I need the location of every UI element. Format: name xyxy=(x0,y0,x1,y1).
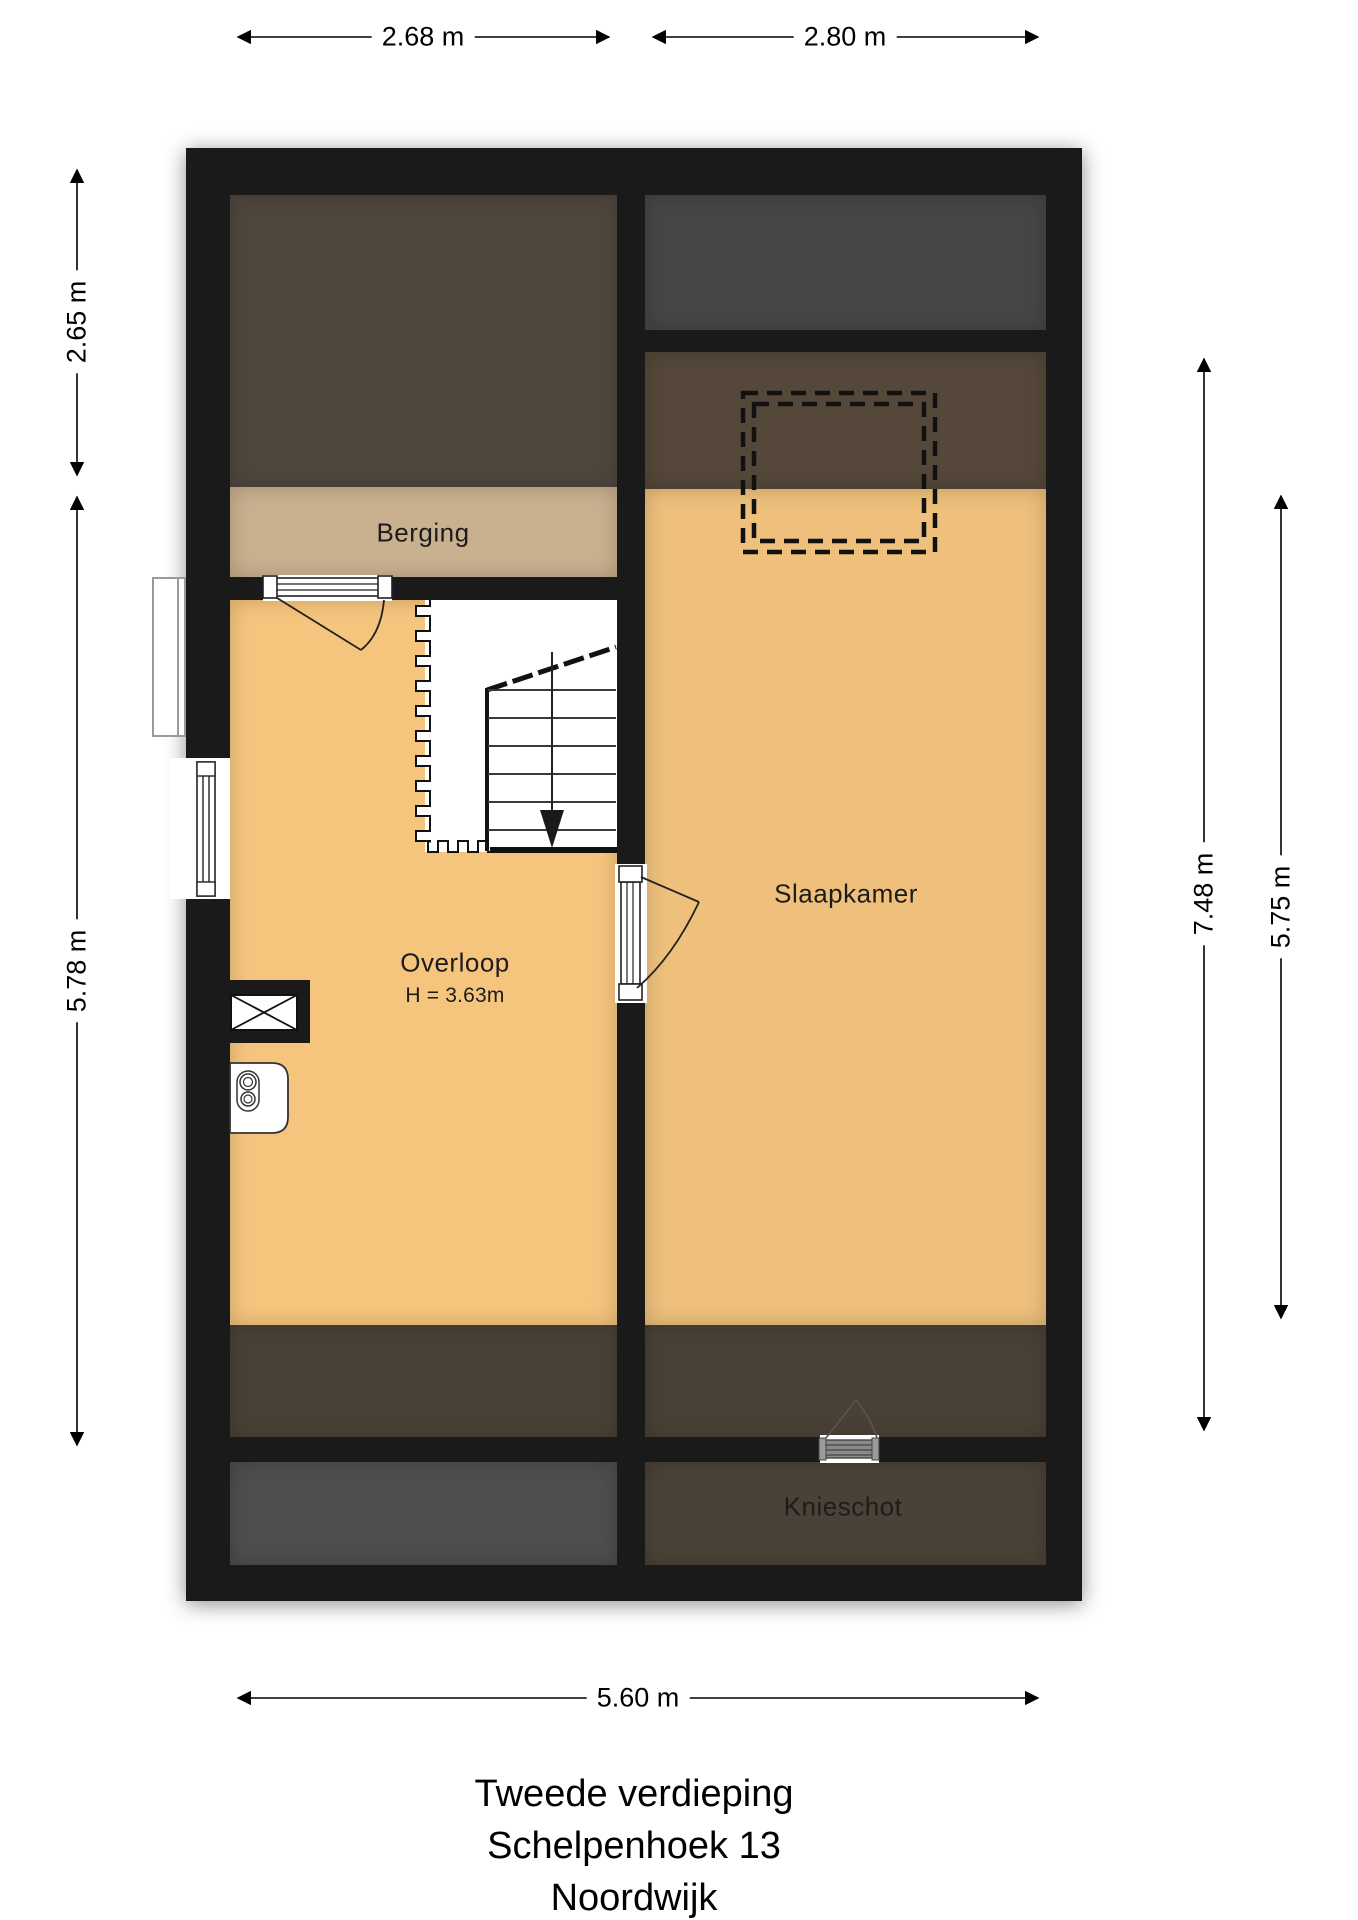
slaapkamer-slope-bottom xyxy=(645,1325,1046,1437)
knieschot-door-opening xyxy=(820,1435,879,1463)
overloop-slope-bottom xyxy=(230,1325,617,1437)
overloop-label: Overloop xyxy=(400,948,510,979)
room-roof-void-left xyxy=(230,195,617,487)
room-bottom-left xyxy=(230,1462,617,1565)
dim-bottom: 5.60 m xyxy=(587,1683,690,1714)
slaapkamer-door-opening xyxy=(615,864,647,1003)
knieschot-label: Knieschot xyxy=(784,1492,903,1523)
dim-top-right: 2.80 m xyxy=(794,22,897,53)
plan-title-city: Noordwijk xyxy=(475,1872,794,1920)
stairwell xyxy=(425,600,617,852)
plan-title: Tweede verdieping Schelpenhoek 13 Noordw… xyxy=(475,1768,794,1920)
left-window-opening xyxy=(170,758,230,899)
berging-label: Berging xyxy=(376,518,469,549)
plan-title-floor: Tweede verdieping xyxy=(475,1768,794,1820)
slaapkamer-label: Slaapkamer xyxy=(774,879,918,910)
slaapkamer-slope-top xyxy=(645,352,1046,489)
plan-title-address: Schelpenhoek 13 xyxy=(475,1820,794,1872)
dim-left-upper: 2.65 m xyxy=(62,271,93,374)
dim-top-left: 2.68 m xyxy=(372,22,475,53)
dormer-window xyxy=(152,577,186,737)
overloop-height-label: H = 3.63m xyxy=(405,984,504,1008)
floorplan-page: Berging Overloop H = 3.63m Slaapkamer Kn… xyxy=(0,0,1358,1920)
berging-door-opening xyxy=(263,575,392,601)
dim-right-inner: 5.75 m xyxy=(1266,856,1297,959)
room-roof-void-right xyxy=(645,195,1046,330)
dim-left-lower: 5.78 m xyxy=(62,920,93,1023)
dim-right-full: 7.48 m xyxy=(1189,843,1220,946)
